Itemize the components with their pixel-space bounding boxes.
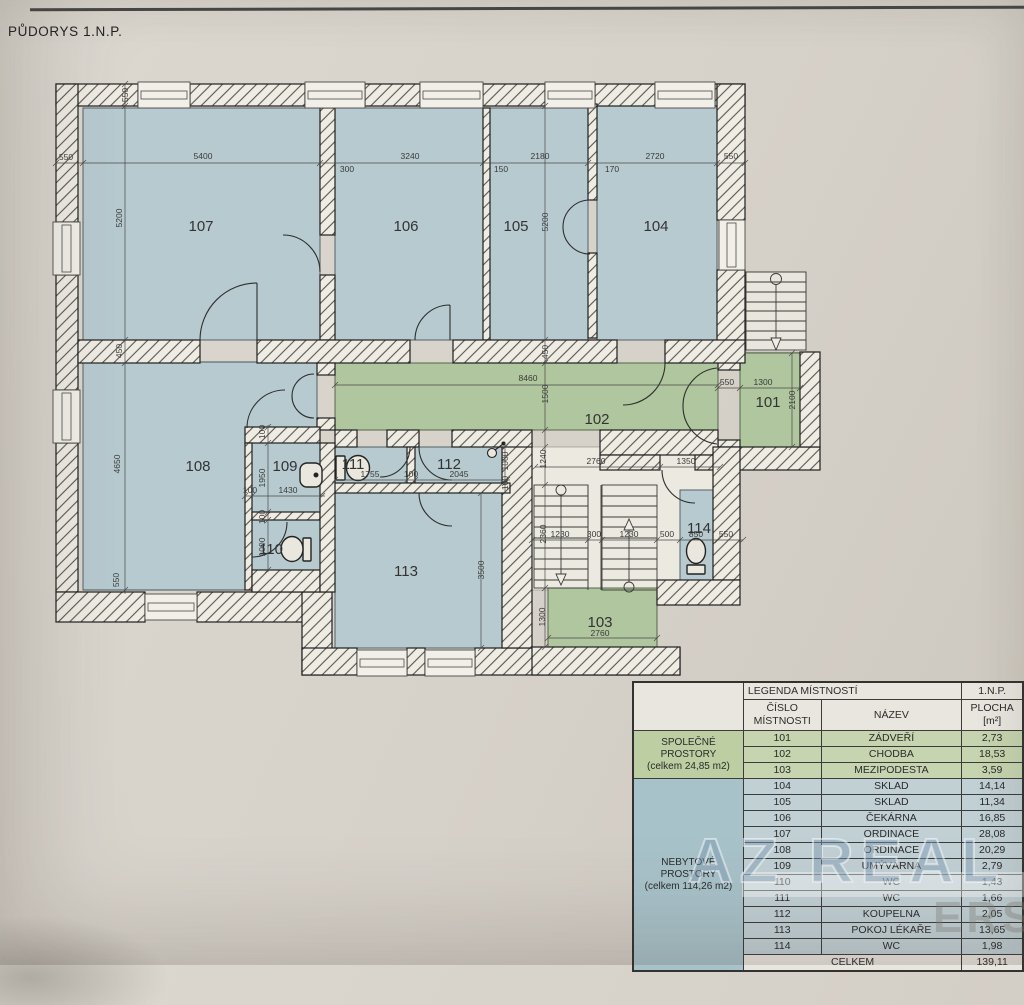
legend-cell-nazev: WC — [821, 891, 962, 907]
dim-label: 550 — [720, 377, 734, 387]
legend-cell-nazev: UMÝVÁRNA — [821, 859, 962, 875]
legend-cell-plocha: 1,43 — [962, 875, 1023, 891]
legend-col-plocha: PLOCHA[m²] — [962, 700, 1023, 731]
legend-cell-plocha: 2,05 — [962, 907, 1023, 923]
dim-label: 3500 — [476, 560, 486, 579]
legend-cell-nazev: POKOJ LÉKAŘE — [821, 923, 962, 939]
legend-cell-plocha: 1,98 — [962, 939, 1023, 955]
legend-cell-plocha: 16,85 — [962, 811, 1023, 827]
legend-cell-plocha: 18,53 — [962, 747, 1023, 763]
room-label-110: 110 — [259, 541, 283, 558]
legend-cell-cislo: 114 — [743, 939, 821, 955]
dim-label: 550 — [120, 88, 130, 102]
legend-group-spolecne: SPOLEČNÉPROSTORY(celkem 24,85 m2) — [633, 731, 743, 779]
room-label-109: 109 — [272, 458, 297, 475]
dim-label: 1350 — [677, 456, 696, 466]
legend-row-104: NEBYTOVÉPROSTORY(celkem 114,26 m2)104SKL… — [633, 779, 1023, 795]
legend-cell-cislo: 101 — [743, 731, 821, 747]
scan-corner-shadow — [0, 915, 170, 1005]
floor-plan-svg: 5505400324021802720550300150170550520045… — [0, 0, 1024, 700]
room-label-104: 104 — [643, 218, 668, 235]
legend-cell-nazev: ČEKÁRNA — [821, 811, 962, 827]
room-label-106: 106 — [393, 218, 418, 235]
legend-row-101: SPOLEČNÉPROSTORY(celkem 24,85 m2)101ZÁDV… — [633, 731, 1023, 747]
dim-label: 2180 — [531, 151, 550, 161]
legend-cell-plocha: 13,65 — [962, 923, 1023, 939]
room-label-103: 103 — [587, 614, 612, 631]
dim-label: 2360 — [538, 524, 548, 543]
dim-label: 100 — [404, 469, 418, 479]
legend-cell-nazev: CHODBA — [821, 747, 962, 763]
legend-cell-nazev: SKLAD — [821, 795, 962, 811]
dim-label: 1230 — [551, 529, 570, 539]
legend-cell-cislo: 110 — [743, 875, 821, 891]
legend-cell-cislo: 111 — [743, 891, 821, 907]
dim-label: 450 — [114, 344, 124, 358]
dim-label: 3240 — [401, 151, 420, 161]
dim-label: 100 — [257, 425, 267, 439]
legend-cell-nazev: ORDINACE — [821, 827, 962, 843]
room-label-101: 101 — [755, 394, 780, 411]
room-label-111: 111 — [342, 456, 365, 473]
room-label-108: 108 — [185, 458, 210, 475]
dim-label: 550 — [724, 151, 738, 161]
toilet-icon — [281, 537, 311, 562]
dim-label: 1230 — [620, 529, 639, 539]
dim-label: 170 — [605, 164, 619, 174]
legend-cell-cislo: 104 — [743, 779, 821, 795]
legend-cell-cislo: 103 — [743, 763, 821, 779]
dim-label: 300 — [340, 164, 354, 174]
legend-header-row: LEGENDA MÍSTNOSTÍ1.N.P. — [633, 682, 1023, 700]
dim-label: 1950 — [257, 468, 267, 487]
room-label-102: 102 — [584, 411, 609, 428]
room-label-105: 105 — [503, 218, 528, 235]
legend-cell-cislo: 109 — [743, 859, 821, 875]
legend-cell-plocha: 14,14 — [962, 779, 1023, 795]
dim-label: 5400 — [194, 151, 213, 161]
legend-cell-nazev: ORDINACE — [821, 843, 962, 859]
legend-cell-nazev: KOUPELNA — [821, 907, 962, 923]
legend-corner-cell — [633, 682, 743, 731]
legend-cell-plocha: 20,29 — [962, 843, 1023, 859]
legend-cell-plocha: 11,34 — [962, 795, 1023, 811]
legend-cell-nazev: WC — [821, 939, 962, 955]
dim-label: 550 — [59, 152, 73, 162]
dim-label: 500 — [660, 529, 674, 539]
dim-label: 1430 — [279, 485, 298, 495]
legend-title: LEGENDA MÍSTNOSTÍ — [743, 682, 961, 700]
dim-label: 550 — [719, 529, 733, 539]
room-label-107: 107 — [188, 218, 213, 235]
dim-label: 2760 — [587, 456, 606, 466]
legend-cell-cislo: 102 — [743, 747, 821, 763]
scanned-floor-plan-page: { "title": "PŮDORYS 1.N.P.", "colors": {… — [0, 0, 1024, 965]
legend-cell-plocha: 3,59 — [962, 763, 1023, 779]
dim-label: 100 — [257, 510, 267, 524]
legend-cell-cislo: 108 — [743, 843, 821, 859]
legend-table: LEGENDA MÍSTNOSTÍ1.N.P.ČÍSLO MÍSTNOSTINÁ… — [632, 681, 1024, 972]
dim-label: 5200 — [540, 212, 550, 231]
dim-label: 300 — [587, 529, 601, 539]
legend-cell-plocha: 2,73 — [962, 731, 1023, 747]
legend-total-value: 139,11 — [962, 955, 1023, 972]
dim-label: 450 — [540, 345, 550, 359]
legend-col-nazev: NÁZEV — [821, 700, 962, 731]
legend-cell-plocha: 2,79 — [962, 859, 1023, 875]
legend-cell-cislo: 106 — [743, 811, 821, 827]
toilet-icon — [687, 539, 706, 575]
room-label-114: 114 — [687, 520, 711, 537]
dim-label: 100 — [243, 485, 257, 495]
legend-cell-nazev: WC — [821, 875, 962, 891]
dim-label: 1500 — [540, 384, 550, 403]
legend-group-nebytove: NEBYTOVÉPROSTORY(celkem 114,26 m2) — [633, 779, 743, 972]
legend-cell-nazev: ZÁDVEŘÍ — [821, 731, 962, 747]
legend-cell-cislo: 112 — [743, 907, 821, 923]
dim-label: 2100 — [787, 390, 797, 409]
dim-label: 1300 — [754, 377, 773, 387]
dim-label: 550 — [111, 573, 121, 587]
legend-cell-plocha: 1,66 — [962, 891, 1023, 907]
washbasin-icon — [300, 463, 322, 487]
legend-cell-nazev: MEZIPODESTA — [821, 763, 962, 779]
legend-floor: 1.N.P. — [962, 682, 1023, 700]
room-label-113: 113 — [394, 563, 418, 580]
legend-cell-cislo: 105 — [743, 795, 821, 811]
dim-label: 150 — [494, 164, 508, 174]
dim-label: 1240 — [538, 449, 548, 468]
legend-cell-plocha: 28,08 — [962, 827, 1023, 843]
dim-label: 100 — [500, 476, 510, 490]
legend-col-cislo: ČÍSLO MÍSTNOSTI — [743, 700, 821, 731]
legend-cell-nazev: SKLAD — [821, 779, 962, 795]
legend-cell-cislo: 113 — [743, 923, 821, 939]
dim-label: 1300 — [537, 607, 547, 626]
room-label-112: 112 — [437, 456, 461, 473]
dim-label: 2720 — [646, 151, 665, 161]
dim-label: 8460 — [519, 373, 538, 383]
legend-total-label: CELKEM — [743, 955, 961, 972]
dim-label: 4650 — [112, 454, 122, 473]
dim-label: 1000 — [500, 451, 510, 470]
dim-label: 5200 — [114, 208, 124, 227]
legend-cell-cislo: 107 — [743, 827, 821, 843]
